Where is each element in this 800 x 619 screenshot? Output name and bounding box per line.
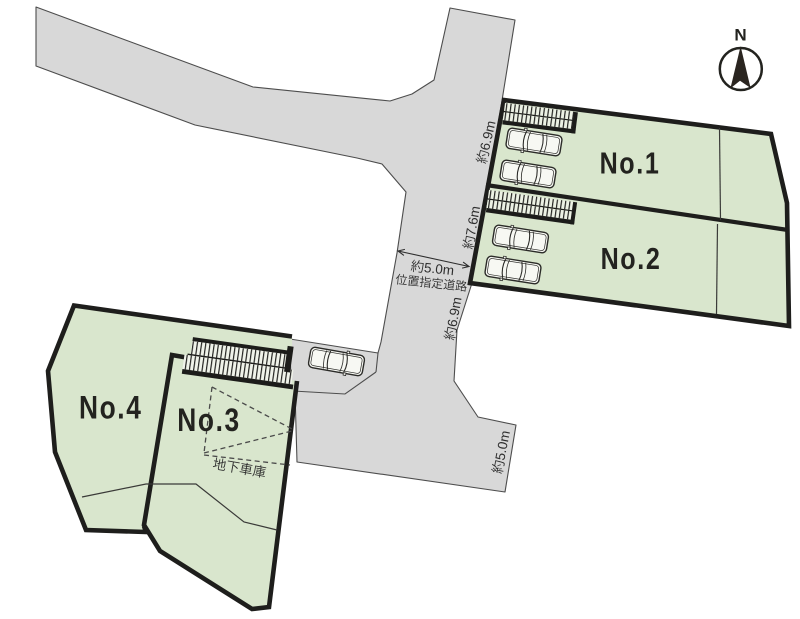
svg-text:N: N [734, 26, 746, 45]
svg-text:No.4: No.4 [79, 390, 143, 426]
svg-text:5.0m: 5.0m [423, 260, 454, 278]
svg-text:No.1: No.1 [600, 145, 661, 180]
svg-text:No.3: No.3 [177, 402, 241, 438]
svg-text:No.2: No.2 [601, 240, 662, 275]
